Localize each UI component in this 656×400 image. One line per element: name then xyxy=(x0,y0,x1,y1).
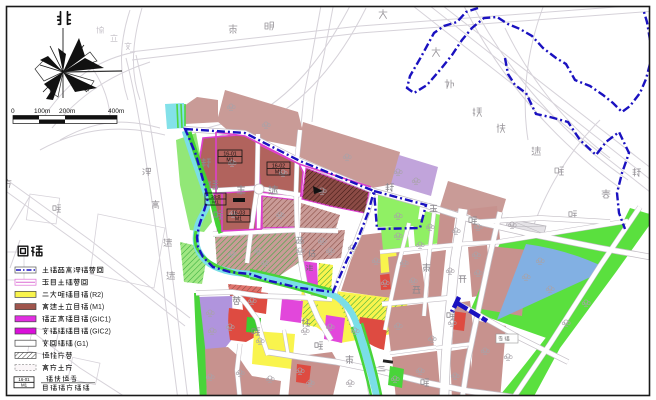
svg-text:(G1): (G1) xyxy=(74,341,88,348)
svg-text:16-01: 16-01 xyxy=(223,151,236,157)
svg-text:0: 0 xyxy=(11,108,15,115)
svg-text:100m: 100m xyxy=(34,108,50,115)
svg-text:200m: 200m xyxy=(59,108,75,115)
svg-text:M1: M1 xyxy=(212,200,219,206)
svg-text:16-02: 16-02 xyxy=(272,163,285,169)
svg-text:16-03: 16-03 xyxy=(232,210,245,216)
svg-text:16-0: 16-0 xyxy=(211,194,221,200)
svg-text:(R2): (R2) xyxy=(90,292,104,299)
svg-text:(GIC1): (GIC1) xyxy=(90,316,111,323)
svg-text:M1: M1 xyxy=(21,382,28,387)
svg-text:M1: M1 xyxy=(275,170,282,176)
svg-text:M1: M1 xyxy=(226,158,233,164)
svg-text:(M1): (M1) xyxy=(90,304,104,311)
svg-text:M1: M1 xyxy=(235,217,242,223)
svg-text:(GIC2): (GIC2) xyxy=(90,329,111,336)
svg-text:400m: 400m xyxy=(108,108,124,115)
